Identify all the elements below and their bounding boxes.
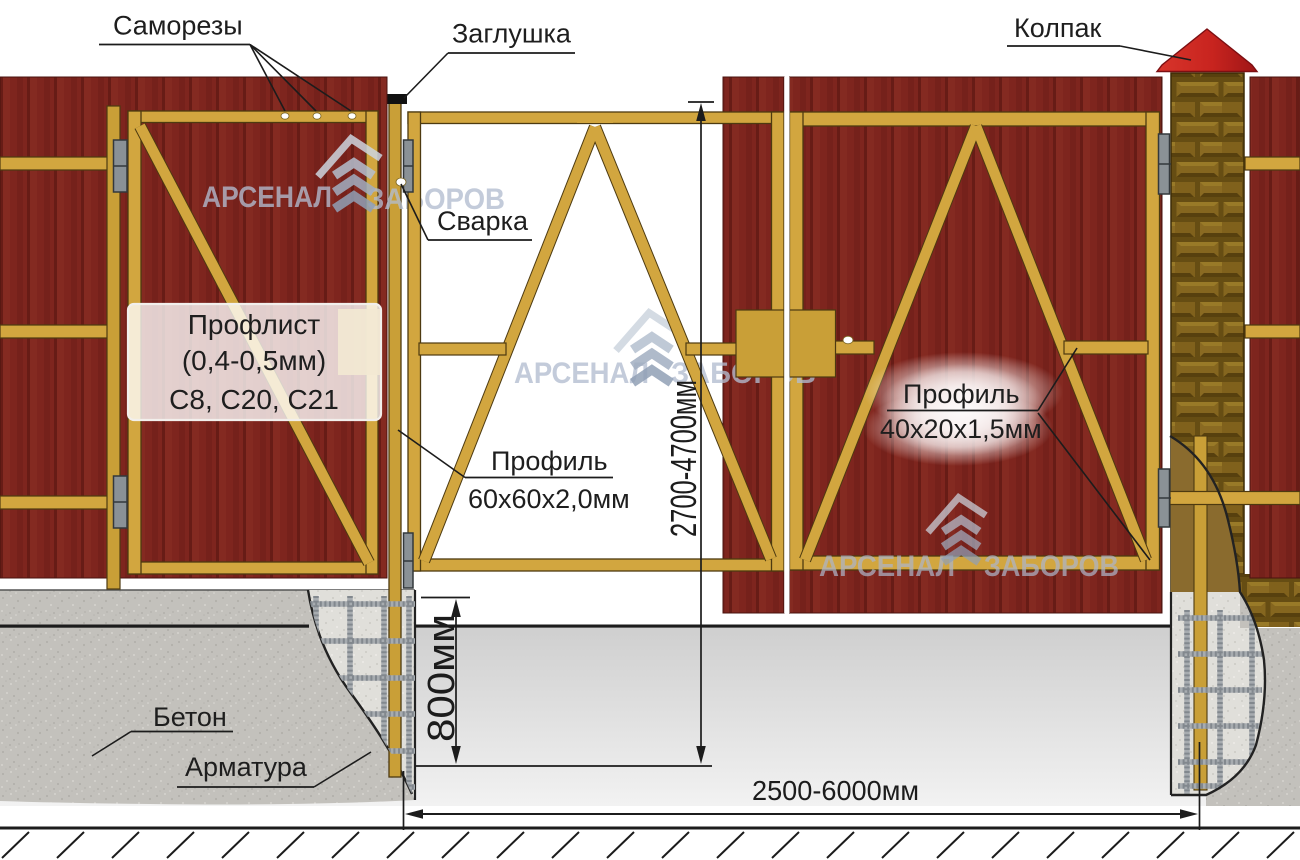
svg-text:Сварка: Сварка [437, 206, 529, 236]
svg-text:Бетон: Бетон [153, 702, 227, 732]
svg-text:Профиль: Профиль [491, 446, 608, 476]
svg-text:800мм: 800мм [421, 614, 463, 742]
svg-text:2500-6000мм: 2500-6000мм [752, 775, 919, 806]
svg-text:Колпак: Колпак [1014, 13, 1102, 43]
svg-text:40х20х1,5мм: 40х20х1,5мм [880, 414, 1042, 444]
svg-text:С8, С20, С21: С8, С20, С21 [169, 384, 339, 415]
svg-text:Арматура: Арматура [185, 752, 308, 782]
svg-text:Саморезы: Саморезы [113, 11, 243, 41]
svg-text:(0,4-0,5мм): (0,4-0,5мм) [182, 345, 326, 376]
svg-text:Заглушка: Заглушка [452, 19, 572, 49]
svg-text:АРСЕНАЛ: АРСЕНАЛ [514, 357, 649, 390]
svg-text:2700-4700мм: 2700-4700мм [663, 380, 704, 537]
svg-text:Профлист: Профлист [188, 309, 321, 340]
svg-text:Профиль: Профиль [903, 379, 1020, 409]
svg-text:60х60х2,0мм: 60х60х2,0мм [468, 484, 630, 514]
svg-text:АРСЕНАЛ: АРСЕНАЛ [819, 550, 955, 583]
svg-text:ЗАБОРОВ: ЗАБОРОВ [984, 550, 1119, 583]
svg-text:АРСЕНАЛ: АРСЕНАЛ [202, 181, 332, 214]
